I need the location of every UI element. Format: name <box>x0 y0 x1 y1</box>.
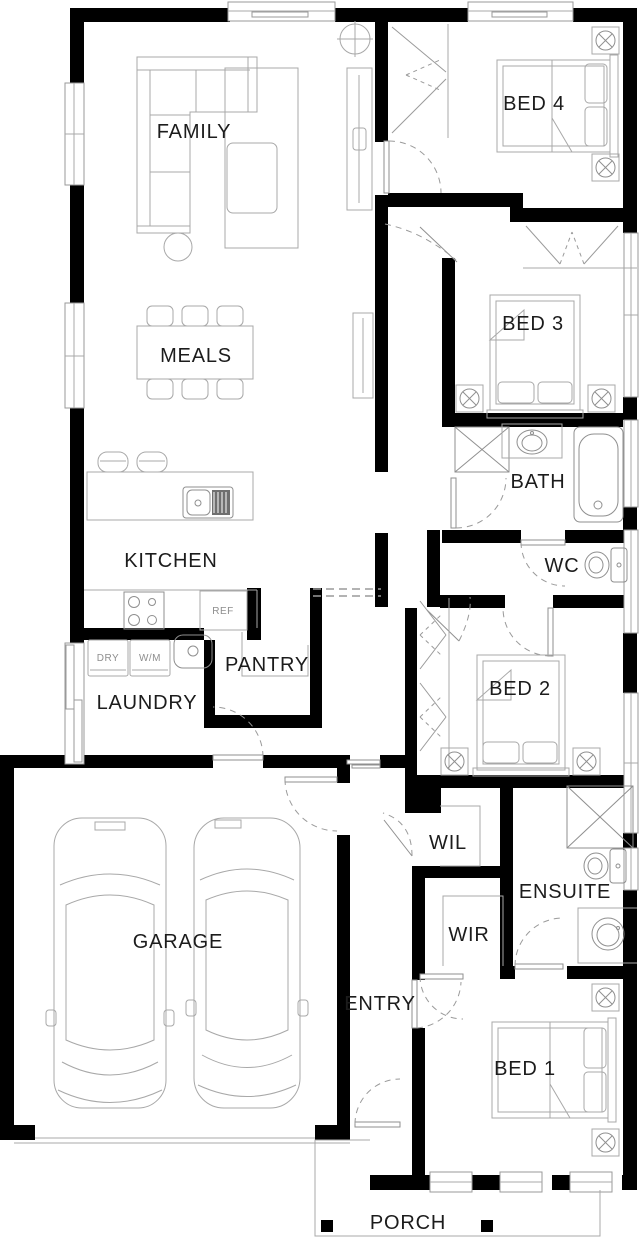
opening-kitchen-hall <box>313 589 381 596</box>
door-bed3 <box>385 224 457 262</box>
floor-plan-drawing: FAMILY MEALS KITCHEN PANTRY LAUNDRY GARA… <box>0 0 640 1241</box>
room-label-wir: WIR <box>448 924 489 946</box>
room-labels: FAMILY MEALS KITCHEN PANTRY LAUNDRY GARA… <box>97 93 612 1234</box>
door-laundry-garage <box>213 707 263 760</box>
downlight-icon <box>588 385 615 412</box>
shower-icon <box>455 427 509 472</box>
window-family-top-icon <box>228 2 335 21</box>
room-label-bed4: BED 4 <box>503 93 565 115</box>
ensuite-shower-icon <box>567 786 633 848</box>
floor-plan: FAMILY MEALS KITCHEN PANTRY LAUNDRY GARA… <box>0 0 640 1241</box>
window-family-left-icon <box>65 83 84 185</box>
washer-label: W/M <box>139 653 161 664</box>
downlight-icon <box>592 27 619 54</box>
sliding-door-laundry-icon <box>65 643 84 764</box>
door-bath <box>451 478 506 528</box>
door-wil <box>383 813 412 856</box>
dryer-label: DRY <box>97 653 119 664</box>
door-bed4 <box>384 141 441 193</box>
window-bath-right-icon <box>624 420 638 507</box>
tv-cabinet <box>347 68 372 210</box>
window-bed2-right-icon <box>624 693 638 833</box>
room-label-bath: BATH <box>510 471 565 493</box>
downlight-icon <box>441 748 468 775</box>
window-bed1-bottom-3-icon <box>570 1172 612 1192</box>
bed2-robe <box>420 598 449 770</box>
window-bed3-right-icon <box>624 233 638 397</box>
room-label-porch: PORCH <box>370 1212 446 1234</box>
garage-door-line <box>14 1138 350 1143</box>
toilet-icon <box>585 548 627 582</box>
downlight-icon <box>592 154 619 181</box>
door-hall-cavity-slider <box>347 760 380 768</box>
cooktop-icon <box>124 592 164 629</box>
doors <box>213 141 565 1127</box>
room-label-bed1: BED 1 <box>494 1058 556 1080</box>
bed2-bed <box>473 655 569 776</box>
window-meals-left-icon <box>65 303 84 408</box>
vanity-basin-icon <box>502 424 562 458</box>
downlight-icon <box>592 984 619 1011</box>
kitchen-sink-icon <box>183 487 233 518</box>
room-label-ensuite: ENSUITE <box>519 881 611 903</box>
window-bed1-bottom-2-icon <box>500 1172 542 1192</box>
rug <box>225 68 298 248</box>
window-bed4-top-icon <box>468 2 573 21</box>
room-label-bed2: BED 2 <box>489 678 551 700</box>
door-garage-entry <box>285 777 337 831</box>
room-label-entry: ENTRY <box>344 993 415 1015</box>
downlight-icon <box>573 748 600 775</box>
room-label-laundry: LAUNDRY <box>97 692 198 714</box>
stool <box>98 452 128 472</box>
room-label-garage: GARAGE <box>133 931 223 953</box>
door-wir <box>420 974 463 1019</box>
room-label-wc: WC <box>545 555 580 577</box>
side-table <box>164 233 192 261</box>
window-bed1-bottom-1-icon <box>430 1172 472 1192</box>
ceiling-fan-icon <box>337 21 373 57</box>
bed3-robe <box>523 226 637 268</box>
bathtub-icon <box>574 427 623 522</box>
downlight-icon <box>592 1129 619 1156</box>
sofa-icon <box>137 57 257 233</box>
walls <box>0 8 637 1190</box>
coffee-table <box>227 143 277 213</box>
room-label-pantry: PANTRY <box>225 654 309 676</box>
downlight-icon <box>456 385 483 412</box>
ensuite-toilet-icon <box>584 849 626 883</box>
door-bed2 <box>503 608 553 656</box>
car-icon <box>186 818 308 1108</box>
door-bed1 <box>412 980 461 1028</box>
room-label-meals: MEALS <box>160 345 232 367</box>
fridge-label: REF <box>212 606 234 617</box>
stool <box>137 452 167 472</box>
room-label-bed3: BED 3 <box>502 313 564 335</box>
door-ensuite <box>515 918 563 969</box>
car-icon <box>46 818 174 1108</box>
room-label-family: FAMILY <box>157 121 231 143</box>
wall-cabinet <box>353 313 373 398</box>
bed4-robe <box>392 24 448 138</box>
room-label-wil: WIL <box>429 832 467 854</box>
room-label-kitchen: KITCHEN <box>124 550 217 572</box>
door-front-entry <box>355 1079 400 1127</box>
